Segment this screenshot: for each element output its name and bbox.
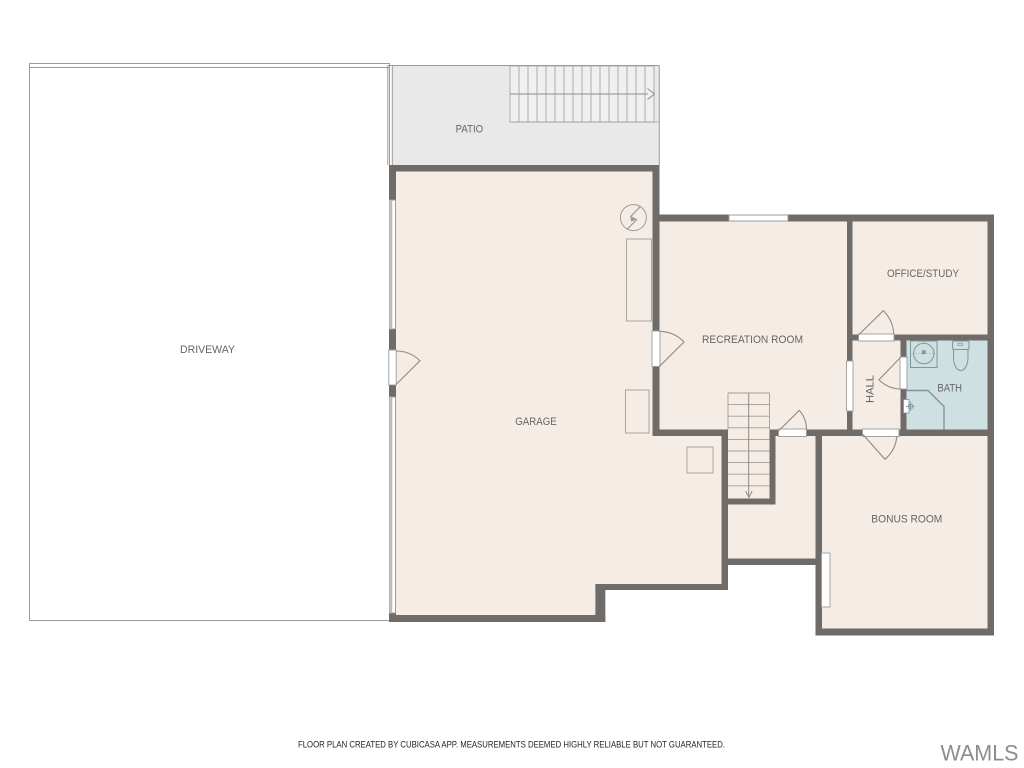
- svg-text:GARAGE: GARAGE: [515, 416, 557, 428]
- svg-text:PATIO: PATIO: [456, 123, 484, 135]
- svg-text:FLOOR PLAN CREATED BY CUBICASA: FLOOR PLAN CREATED BY CUBICASA APP. MEAS…: [298, 740, 725, 751]
- svg-text:BATH: BATH: [937, 383, 962, 395]
- svg-text:OFFICE/STUDY: OFFICE/STUDY: [887, 268, 960, 280]
- svg-text:DRIVEWAY: DRIVEWAY: [180, 344, 236, 356]
- svg-text:RECREATION ROOM: RECREATION ROOM: [702, 334, 803, 346]
- svg-text:BONUS ROOM: BONUS ROOM: [871, 514, 942, 526]
- svg-text:WAMLS: WAMLS: [941, 741, 1019, 766]
- svg-text:HALL: HALL: [865, 375, 877, 403]
